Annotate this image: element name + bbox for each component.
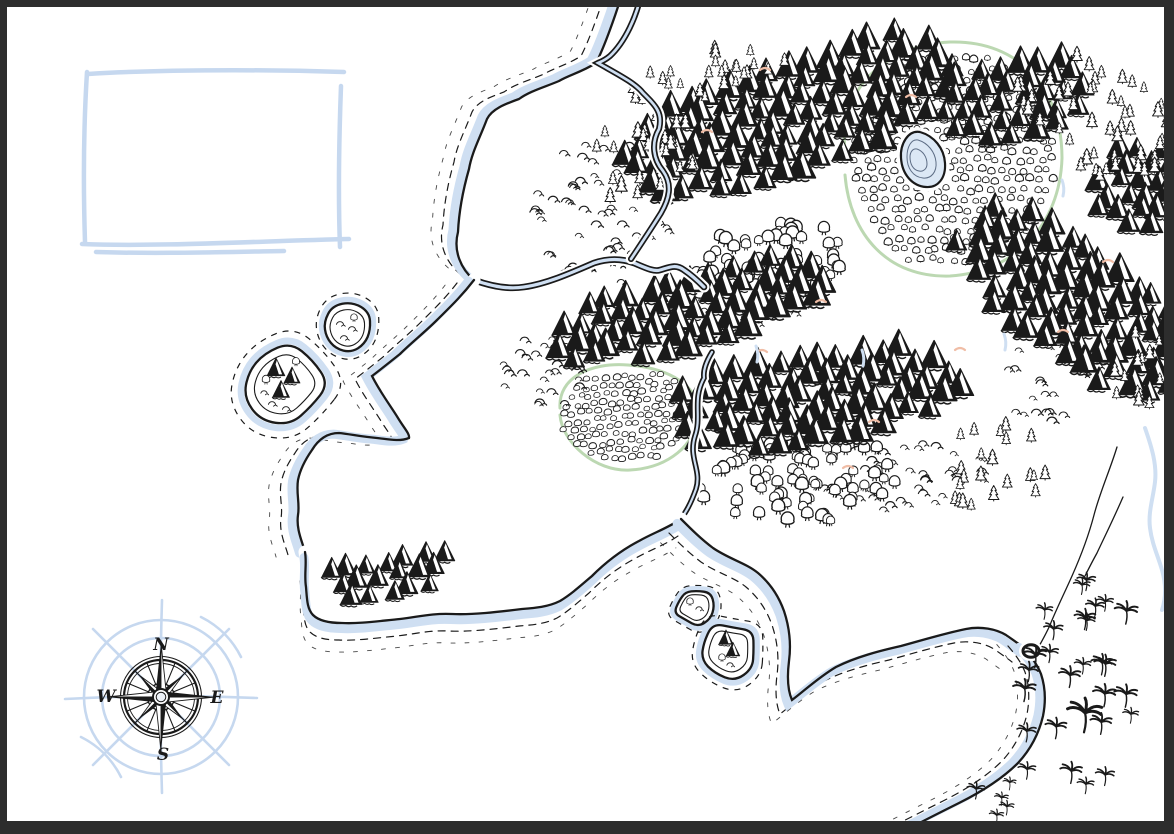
water-stream-east-1 — [1038, 447, 1117, 648]
fantasy-map-canvas: N E S W — [0, 0, 1174, 834]
terrain-palm-grove — [1013, 572, 1138, 793]
water-stream-east-2 — [1085, 497, 1123, 576]
water-coast-northwest — [431, 0, 622, 280]
compass-label-north: N — [152, 635, 170, 655]
compass-label-east: E — [210, 688, 225, 708]
legend-frame-sketch — [82, 70, 349, 253]
terrain-range-east — [945, 193, 1174, 403]
terrain-scrub-east — [1005, 334, 1105, 423]
frame-left — [0, 0, 7, 834]
compass-label-south: S — [157, 745, 169, 765]
frame-bottom — [0, 821, 1174, 834]
frame-right — [1164, 0, 1174, 834]
forest-lake — [901, 132, 945, 187]
terrain-pines-east-south — [950, 416, 1050, 510]
terrain-range-southwest — [321, 541, 455, 607]
water-stream-blue — [1145, 428, 1165, 610]
map-viewport: N E S W — [0, 0, 1174, 834]
compass-label-west: W — [96, 687, 117, 707]
water-coast-southeast — [872, 645, 1045, 834]
frame-top — [0, 0, 1174, 7]
compass-rose: N E S W — [65, 600, 257, 793]
terrain-palm-large — [1068, 698, 1102, 732]
island-nw-small — [316, 293, 379, 359]
